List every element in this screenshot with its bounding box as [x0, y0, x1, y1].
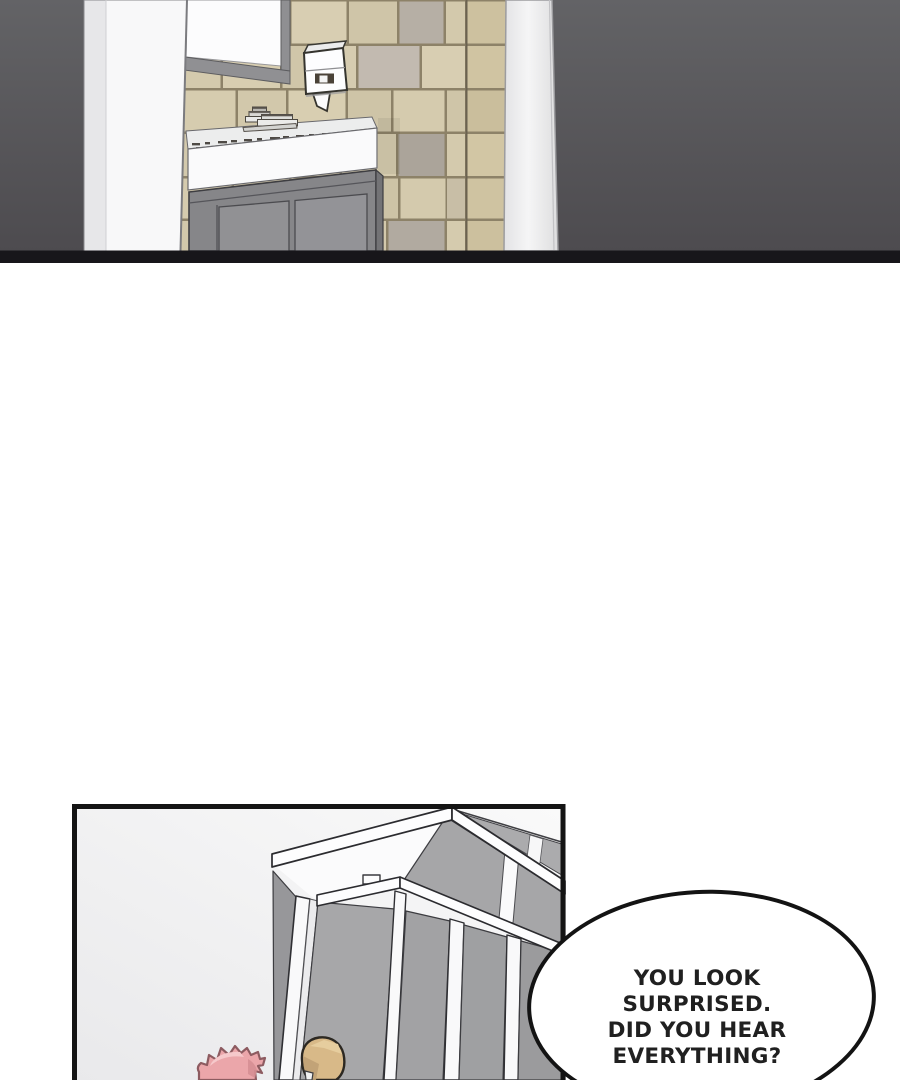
partition-panel	[459, 925, 507, 1080]
mirror	[184, 0, 290, 84]
panel-bottom-edge	[0, 251, 900, 264]
cabinet-door-right	[295, 194, 367, 251]
wall-pillar	[84, 0, 187, 251]
speech-bubble-text: YOU LOOK SURPRISED. DID YOU HEAR EVERYTH…	[557, 966, 837, 1070]
panel-bathroom	[0, 0, 900, 263]
doorway-strip	[504, 0, 558, 251]
panel-partition-room	[72, 804, 566, 1080]
speech-line: DID YOU HEAR	[557, 1018, 837, 1044]
cabinet-door-left	[219, 201, 289, 251]
speech-line: YOU LOOK	[557, 966, 837, 992]
webtoon-page: YOU LOOK SURPRISED. DID YOU HEAR EVERYTH…	[0, 0, 900, 1080]
tan-haired-character	[302, 1037, 344, 1080]
speech-line: EVERYTHING?	[557, 1044, 837, 1070]
speech-line: SURPRISED.	[557, 992, 837, 1018]
partition-panel	[396, 911, 450, 1080]
